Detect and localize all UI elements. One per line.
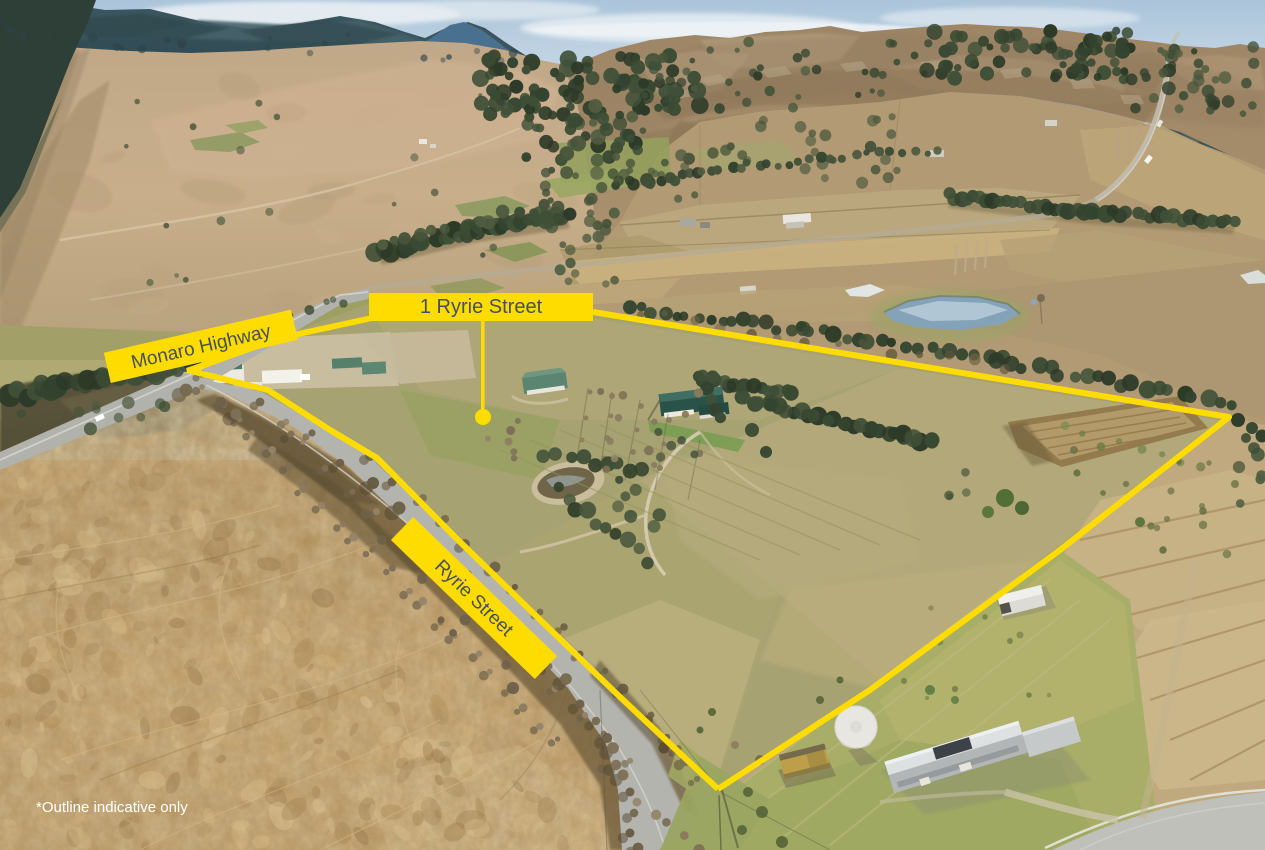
svg-text:1 Ryrie Street: 1 Ryrie Street <box>420 296 543 318</box>
svg-text:*Outline indicative only: *Outline indicative only <box>36 799 188 816</box>
